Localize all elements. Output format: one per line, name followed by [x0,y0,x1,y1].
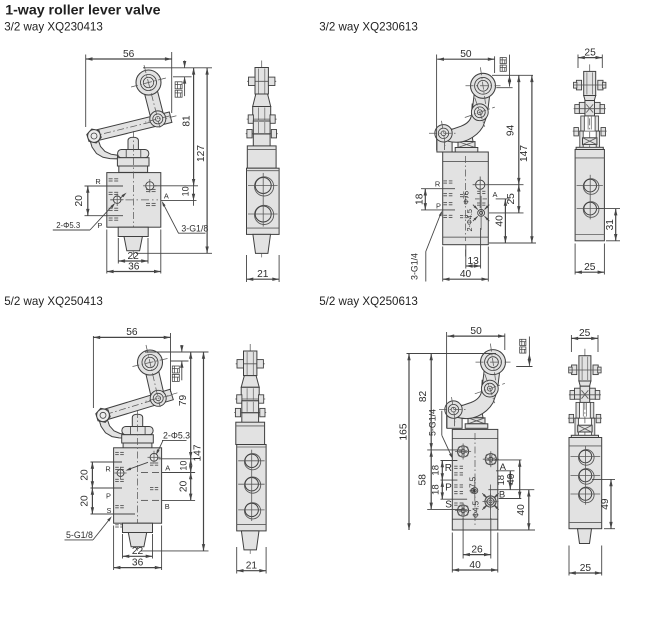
svg-text:2-Φ5.3: 2-Φ5.3 [163,431,190,441]
svg-text:40: 40 [495,215,506,227]
svg-text:22: 22 [132,546,144,557]
svg-text:40: 40 [460,269,472,280]
svg-text:5-G1/4: 5-G1/4 [427,409,437,436]
svg-text:S: S [445,499,452,510]
svg-text:58: 58 [418,474,429,486]
svg-text:94: 94 [506,125,517,137]
svg-text:2-Φ5.3: 2-Φ5.3 [56,221,80,230]
svg-text:56: 56 [123,49,135,60]
svg-text:25: 25 [579,328,591,339]
svg-text:10: 10 [178,461,188,471]
svg-text:P: P [97,221,102,230]
svg-text:25: 25 [584,47,596,58]
svg-text:81: 81 [181,115,192,127]
svg-text:147: 147 [192,444,203,461]
svg-text:A: A [493,190,498,199]
svg-text:18: 18 [430,484,441,495]
svg-text:5/2 way XQ250413: 5/2 way XQ250413 [4,295,103,308]
svg-text:22: 22 [128,251,140,262]
svg-text:40: 40 [506,473,517,485]
svg-text:A: A [165,464,170,473]
svg-text:18: 18 [430,465,441,476]
svg-text:127: 127 [196,145,207,162]
svg-text:Φ4.5: Φ4.5 [471,500,480,518]
svg-text:R: R [435,180,440,189]
svg-text:S: S [107,506,112,515]
svg-text:21: 21 [246,561,258,572]
svg-text:26: 26 [471,544,483,555]
svg-text:165: 165 [399,423,410,440]
svg-text:40: 40 [516,504,527,516]
svg-text:13: 13 [468,256,480,267]
svg-text:36: 36 [128,261,140,272]
svg-text:3/2 way XQ230413: 3/2 way XQ230413 [4,21,103,34]
svg-text:18: 18 [415,193,426,205]
svg-text:82: 82 [418,391,429,403]
svg-text:50: 50 [460,49,472,60]
svg-text:20: 20 [74,195,85,207]
svg-text:Φ75: Φ75 [462,191,471,205]
svg-text:1-way roller lever valve: 1-way roller lever valve [5,3,160,19]
svg-text:5-G1/8: 5-G1/8 [66,530,93,540]
svg-text:25: 25 [584,262,596,273]
svg-text:P: P [445,482,452,493]
svg-text:10: 10 [181,186,191,196]
svg-text:3-G1/8: 3-G1/8 [181,223,208,233]
svg-text:147: 147 [519,145,530,162]
svg-text:79: 79 [178,395,189,407]
svg-text:3-G1/4: 3-G1/4 [410,253,420,280]
svg-text:40: 40 [469,560,481,571]
svg-text:P: P [436,201,441,210]
svg-text:B: B [499,490,505,501]
svg-text:25: 25 [580,563,592,574]
svg-text:3/2 way XQ230613: 3/2 way XQ230613 [319,21,418,34]
svg-text:20: 20 [178,480,189,492]
svg-text:36: 36 [132,557,144,568]
svg-text:31: 31 [605,219,616,231]
svg-text:B: B [165,502,170,511]
svg-text:49: 49 [600,498,611,510]
svg-text:2-Φ4.5: 2-Φ4.5 [465,209,474,231]
svg-text:A: A [164,191,169,200]
svg-text:R: R [105,465,110,474]
svg-text:R: R [445,463,452,474]
svg-text:P: P [106,492,111,501]
svg-text:A: A [500,462,507,473]
svg-text:56: 56 [126,327,138,338]
svg-text:R: R [95,177,100,186]
svg-text:21: 21 [257,269,269,280]
svg-text:50: 50 [470,326,482,337]
svg-text:5/2 way XQ250613: 5/2 way XQ250613 [319,295,418,308]
svg-text:20: 20 [79,469,90,481]
svg-text:20: 20 [79,495,90,507]
svg-text:Φ7.5: Φ7.5 [468,476,477,494]
